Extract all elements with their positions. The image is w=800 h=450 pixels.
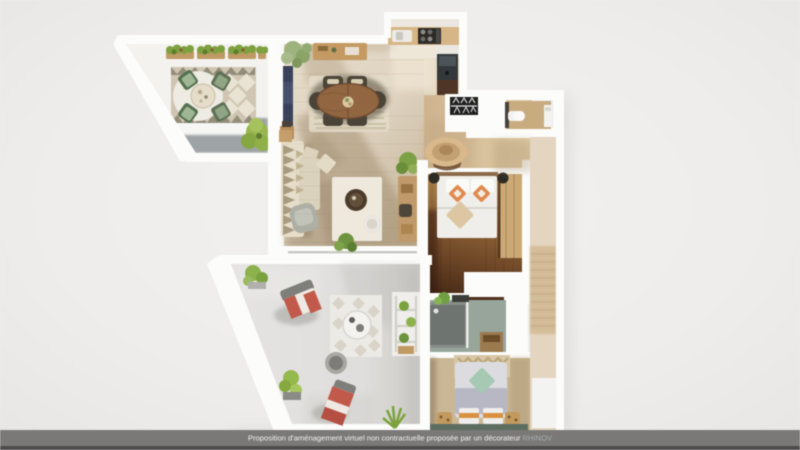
svg-text:Proposition d'aménagement virt: Proposition d'aménagement virtuel non co… [248,434,553,443]
